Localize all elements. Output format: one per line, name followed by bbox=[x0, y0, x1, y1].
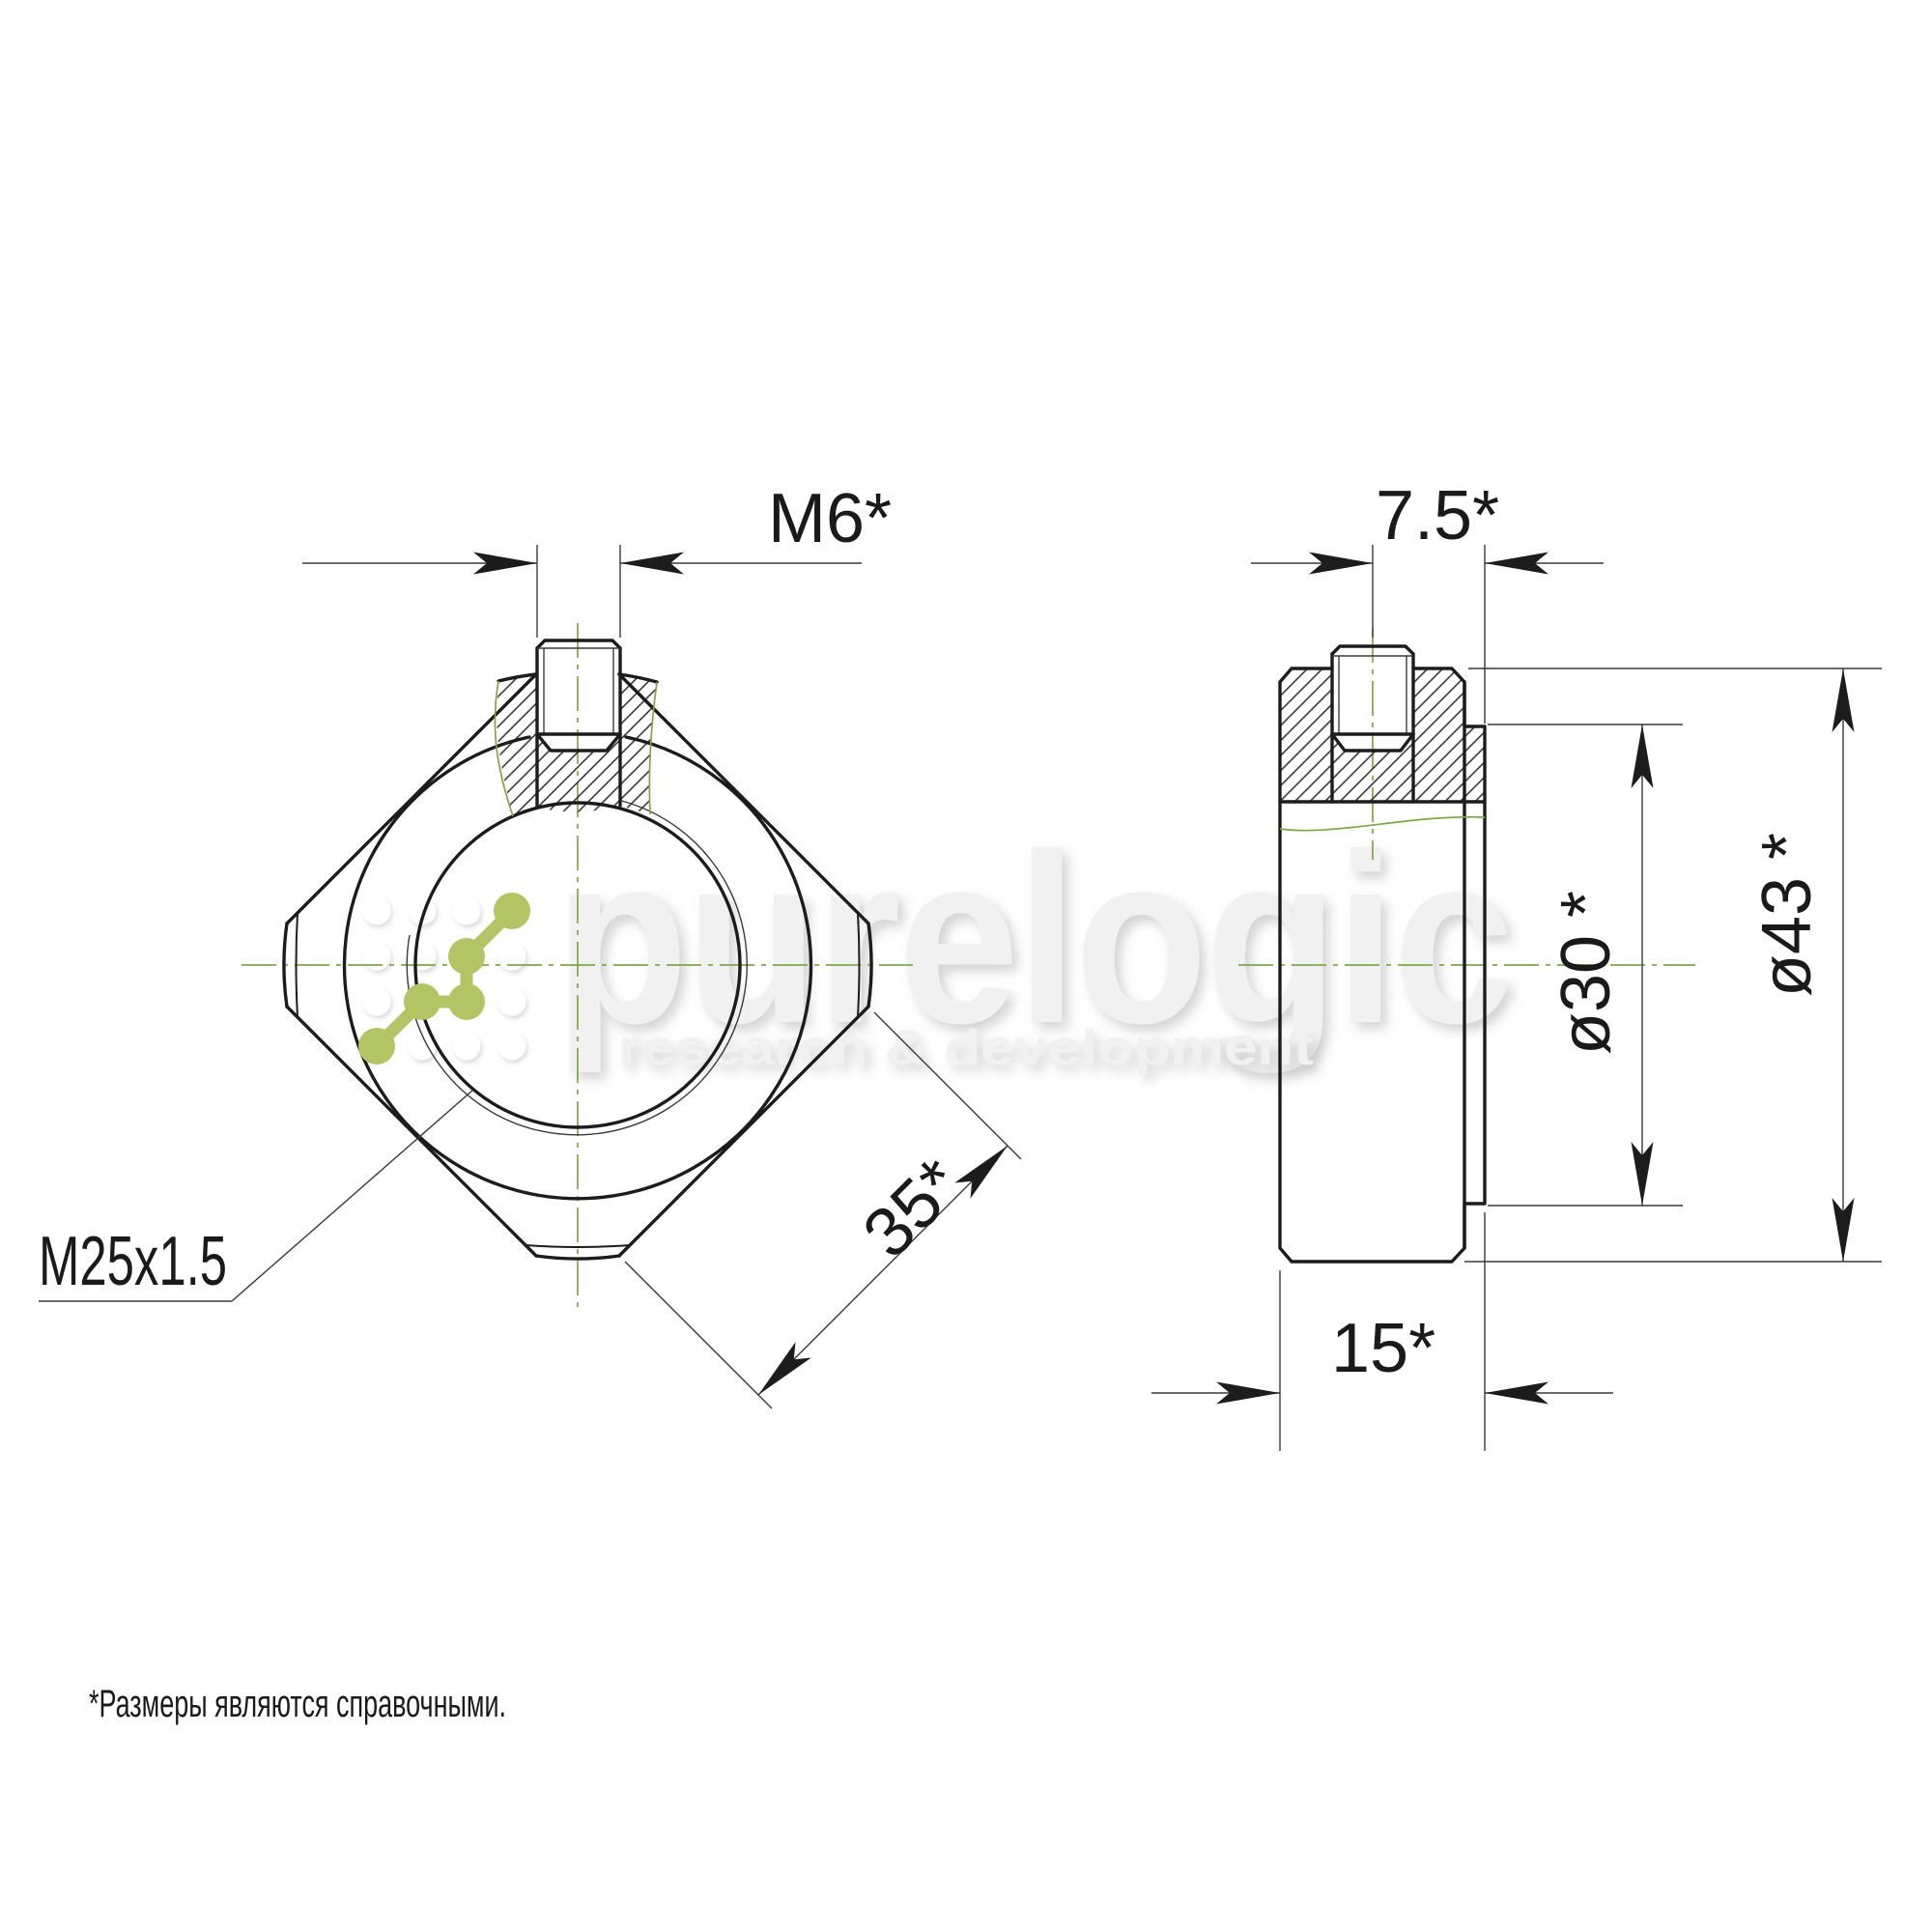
dim-35-label: 35* bbox=[849, 1145, 978, 1273]
dim-7-5-label: 7.5* bbox=[1376, 477, 1499, 554]
technical-drawing: purelogic research & development bbox=[0, 0, 1932, 1932]
front-view bbox=[241, 623, 913, 1309]
callout-m25: M25x1.5 bbox=[39, 1090, 473, 1301]
dim-d43-label: ø43 bbox=[1748, 877, 1826, 997]
dim-15-label: 15* bbox=[1331, 1310, 1435, 1387]
callout-m25-label: M25x1.5 bbox=[39, 1223, 227, 1300]
dim-15: 15* bbox=[1151, 1212, 1613, 1451]
watermark: purelogic research & development bbox=[363, 804, 1513, 1076]
dim-m6: M6* bbox=[302, 480, 892, 638]
dim-d43-star: * bbox=[1748, 833, 1826, 860]
dim-d30-label: ø30 bbox=[1548, 935, 1625, 1055]
corner-chamfer-bottom bbox=[526, 1245, 630, 1247]
dim-d30-star: * bbox=[1548, 891, 1625, 918]
drawing-page: purelogic research & development bbox=[0, 0, 1932, 1932]
watermark-tagline-text: research & development bbox=[618, 1020, 1314, 1076]
footnote: *Размеры являются справочными. bbox=[89, 1683, 506, 1725]
front-view-hatch bbox=[497, 674, 657, 816]
dim-m6-label: M6* bbox=[768, 480, 892, 557]
